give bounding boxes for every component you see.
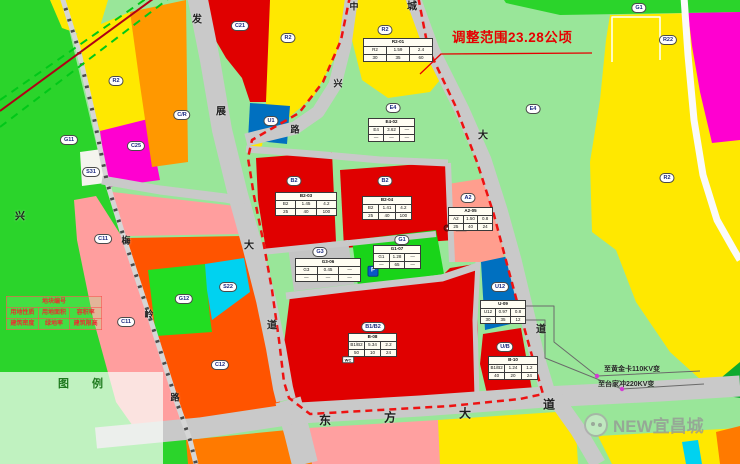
parcel-badge-R2: R2 xyxy=(108,76,123,86)
parcel-badge-R2: R2 xyxy=(659,173,674,183)
road-label-道: 道 xyxy=(267,317,277,332)
substation-note-110kv: 至黄金卡110KV变 xyxy=(604,364,660,374)
parcel-badge-G11: G11 xyxy=(60,135,78,145)
parcel-info-table-B2-03: B2-03B21.454.22540100 xyxy=(275,192,337,216)
parcel-badge-C12: C12 xyxy=(211,360,229,370)
adjustment-range-label: 调整范围23.28公顷 xyxy=(452,26,572,46)
parcel-badge-C-R: C/R xyxy=(173,110,190,120)
block-key-table: 地块编号用地性质用地面积容积率建筑密度绿地率建筑限高 xyxy=(6,296,102,330)
parcel-badge-C11: C11 xyxy=(94,234,112,244)
watermark-text: NEW宜昌城 xyxy=(613,412,704,437)
road-label-大: 大 xyxy=(459,405,471,422)
wechat-icon xyxy=(584,413,608,437)
road-label-发: 发 xyxy=(192,11,202,26)
parcel-badge-B2: B2 xyxy=(377,176,392,186)
parcel-badge-E4: E4 xyxy=(526,104,541,114)
toilet-icon: WC xyxy=(342,356,354,363)
road-label-城: 城 xyxy=(407,0,417,13)
legend-title: 图 例 xyxy=(8,375,163,391)
legend-panel: 图 例 R2二类居住用地C1文化设施用地G1公园绿地U1供电用地110KV110… xyxy=(0,372,163,464)
parcel-badge-C21: C21 xyxy=(231,21,249,31)
road-label-道: 道 xyxy=(543,396,555,413)
parcel-info-table-U-09: U-09U120.970.8303512 xyxy=(480,300,526,324)
planning-map: 调整范围23.28公顷 至黄金卡110KV变 至台家冲220KV变 NEW宜昌城… xyxy=(0,0,740,464)
road-label-岭: 岭 xyxy=(144,308,153,321)
parcel-info-table-E4-02: E4-02E43.62———— xyxy=(368,118,415,142)
road-label-方: 方 xyxy=(384,409,396,426)
parcel-badge-G1: G1 xyxy=(394,235,409,245)
road-label-梅: 梅 xyxy=(121,234,130,247)
parcel-badge-G1: G1 xyxy=(631,3,646,13)
parcel-badge-C25: C25 xyxy=(127,141,145,151)
road-label-展: 展 xyxy=(216,103,226,118)
parcel-badge-R2: R2 xyxy=(280,33,295,43)
road-label-中: 中 xyxy=(349,0,358,13)
parcel-badge-U12: U12 xyxy=(491,282,509,292)
road-label-道: 道 xyxy=(536,321,546,336)
parcel-info-table-G3-06: G3-06G30.45———— xyxy=(295,258,361,282)
parcel-info-table-R2-01: R2-01R21.592.4303560 xyxy=(363,38,433,62)
parcel-badge-R2: R2 xyxy=(377,25,392,35)
map-overlay: 调整范围23.28公顷 至黄金卡110KV变 至台家冲220KV变 NEW宜昌城… xyxy=(0,0,740,464)
parcel-badge-S31: S31 xyxy=(82,167,100,177)
parcel-info-table-B-10: B-10B1/B21.241.2402024 xyxy=(488,356,538,380)
road-label-兴: 兴 xyxy=(333,77,342,90)
road-label-大: 大 xyxy=(244,237,254,252)
parcel-badge-U1: U1 xyxy=(263,116,278,126)
watermark: NEW宜昌城 xyxy=(584,412,704,437)
parcel-badge-E4: E4 xyxy=(386,103,401,113)
substation-note-220kv: 至台家冲220KV变 xyxy=(598,379,654,389)
parcel-info-table-A2-05: A2-05A21.500.8254024 xyxy=(448,207,493,231)
parcel-badge-A2: A2 xyxy=(460,193,475,203)
parcel-badge-C11: C11 xyxy=(117,317,135,327)
road-label-路: 路 xyxy=(290,123,299,136)
parcel-badge-B2: B2 xyxy=(286,176,301,186)
parcel-info-table-G1-07: G1-07G11.28——65— xyxy=(373,245,421,269)
road-label-东: 东 xyxy=(319,412,331,429)
parcel-badge-G12: G12 xyxy=(175,294,193,304)
parcel-info-table-B2-04: B2-04B21.414.22540100 xyxy=(362,196,412,220)
parcel-info-table-B-08: B-08B1/B25.342.2501024 xyxy=(348,333,397,357)
parcel-badge-R22: R22 xyxy=(659,35,677,45)
parcel-badge-B1-B2: B1/B2 xyxy=(361,322,385,332)
road-label-大: 大 xyxy=(478,127,488,142)
parcel-badge-G3: G3 xyxy=(312,247,327,257)
road-label-路: 路 xyxy=(170,391,179,404)
parcel-badge-S22: S22 xyxy=(219,282,237,292)
road-label-兴: 兴 xyxy=(15,208,25,223)
parcel-badge-U-B: U/B xyxy=(496,342,513,352)
